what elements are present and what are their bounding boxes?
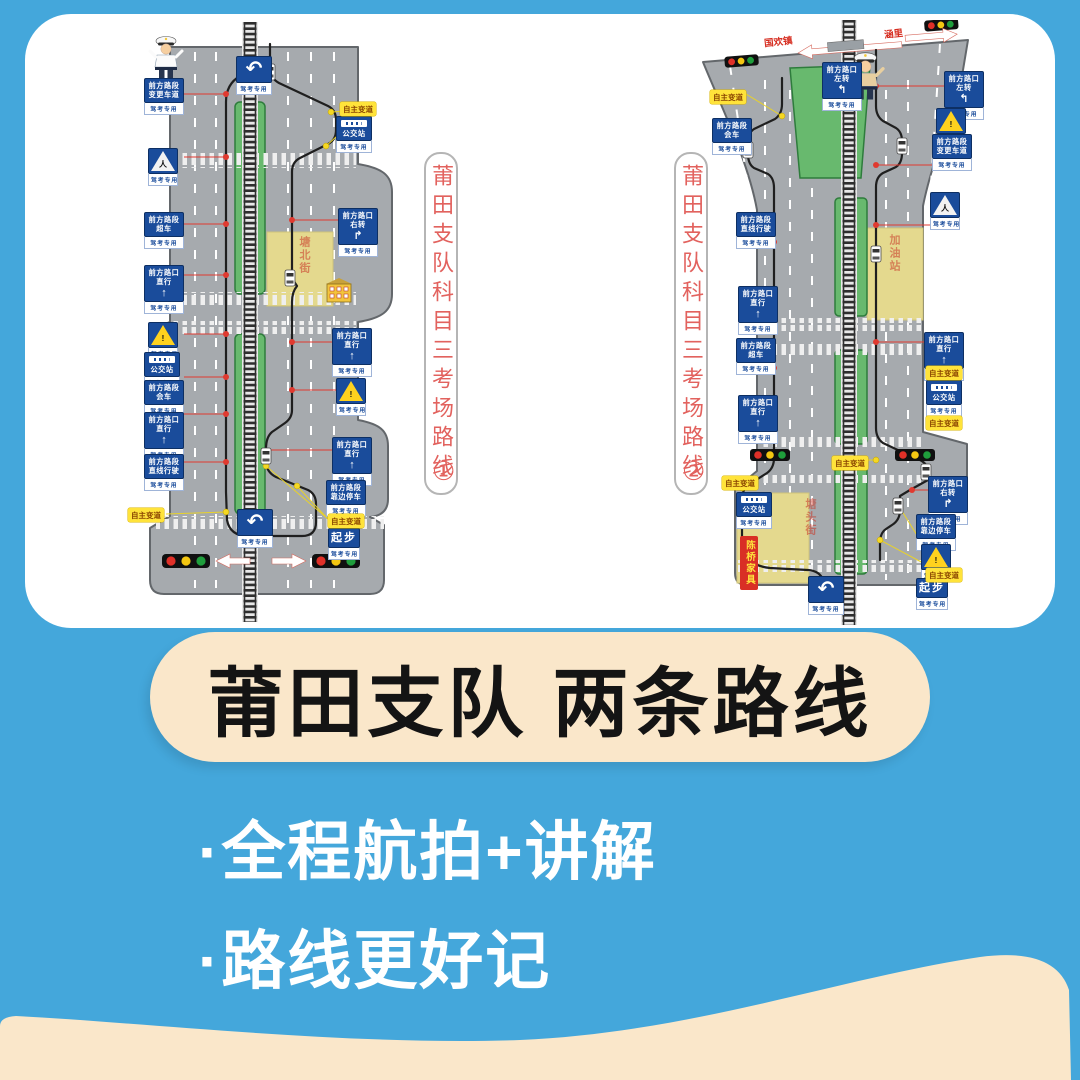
- signs-layer: 国欢镇涵里前方路口左转↰驾考专用自主变道前方路段会车驾考专用前方路段直线行驶驾考…: [690, 20, 985, 625]
- start-sign: 起步驾考专用: [328, 528, 360, 560]
- lane-change-label: 自主变道: [128, 508, 164, 522]
- road-sign: 前方路口直行↑驾考专用: [332, 437, 372, 486]
- road-sign: 前方路口直行↑驾考专用: [738, 395, 778, 444]
- title-banner: 莆田支队 两条路线: [150, 632, 930, 762]
- lane-change-label: 自主变道: [926, 568, 962, 582]
- road-sign: 前方路口左转↰驾考专用: [822, 62, 862, 111]
- lane-change-label: 自主变道: [722, 476, 758, 490]
- route-1-caption: 莆田支队科目三考场路线: [424, 152, 458, 495]
- lane-change-label: 自主变道: [328, 514, 364, 528]
- title-text: 莆田支队 两条路线: [207, 642, 872, 752]
- bullet-aerial: ·全程航拍+讲解: [198, 798, 657, 907]
- road-sign: 前方路段直线行驶驾考专用: [144, 454, 184, 491]
- route-map-1: ↶驾考专用前方路段变更车道驾考专用人驾考专用前方路段超车驾考专用前方路口直行↑驾…: [100, 22, 400, 622]
- maps-card: ↶驾考专用前方路段变更车道驾考专用人驾考专用前方路段超车驾考专用前方路口直行↑驾…: [25, 14, 1055, 628]
- poster: ↶驾考专用前方路段变更车道驾考专用人驾考专用前方路段超车驾考专用前方路口直行↑驾…: [0, 0, 1080, 1080]
- lane-change-label: 自主变道: [926, 416, 962, 430]
- road-sign: 前方路段变更车道驾考专用: [932, 134, 972, 171]
- u-turn-sign: ↶驾考专用: [808, 576, 844, 615]
- lane-change-label: 自主变道: [926, 366, 962, 380]
- direction-label: 涵里: [883, 25, 903, 41]
- road-sign: 前方路口直行↑驾考专用: [738, 286, 778, 335]
- road-name-label: 塘北街: [296, 236, 312, 275]
- lane-change-label: 自主变道: [710, 90, 746, 104]
- bus-stop-sign: 公交站驾考专用: [336, 116, 372, 153]
- road-name-label: 塘头街: [802, 498, 818, 537]
- u-turn-sign: ↶驾考专用: [237, 509, 273, 548]
- signs-layer: ↶驾考专用前方路段变更车道驾考专用人驾考专用前方路段超车驾考专用前方路口直行↑驾…: [100, 22, 400, 622]
- route-2-number: ②: [682, 456, 705, 487]
- road-sign: 前方路段超车驾考专用: [736, 338, 776, 375]
- landmark-label: 陈桥家具: [740, 536, 758, 590]
- road-sign: 前方路口右转↱驾考专用: [338, 208, 378, 257]
- route-2-caption: 莆田支队科目三考场路线: [674, 152, 708, 495]
- road-name-label: 加油站: [886, 234, 902, 273]
- road-sign: 前方路段变更车道驾考专用: [144, 78, 184, 115]
- warning-sign: !驾考专用: [336, 378, 366, 416]
- route-map-2: 国欢镇涵里前方路口左转↰驾考专用自主变道前方路段会车驾考专用前方路段直线行驶驾考…: [690, 20, 985, 625]
- road-sign: 前方路段直线行驶驾考专用: [736, 212, 776, 249]
- road-sign: 前方路口直行↑驾考专用: [144, 265, 184, 314]
- road-sign: 前方路段靠边停车驾考专用: [326, 480, 366, 517]
- feature-bullets: ·全程航拍+讲解 ·路线更好记: [198, 798, 657, 1016]
- warning-sign: 人驾考专用: [148, 148, 178, 186]
- start-sign: 起步驾考专用: [916, 578, 948, 610]
- bus-stop-sign: 公交站驾考专用: [926, 380, 962, 417]
- direction-label: 国欢镇: [763, 33, 793, 50]
- bus-stop-sign: 公交站驾考专用: [736, 492, 772, 529]
- route-1-number: ①: [432, 456, 455, 487]
- bullet-memorable: ·路线更好记: [198, 907, 657, 1016]
- lane-change-label: 自主变道: [832, 456, 868, 470]
- road-sign: 前方路口直行↑驾考专用: [332, 328, 372, 377]
- road-sign: 前方路段超车驾考专用: [144, 212, 184, 249]
- warning-sign: 人驾考专用: [930, 192, 960, 230]
- road-sign: 前方路段会车驾考专用: [712, 118, 752, 155]
- u-turn-sign: ↶驾考专用: [236, 56, 272, 95]
- lane-change-label: 自主变道: [340, 102, 376, 116]
